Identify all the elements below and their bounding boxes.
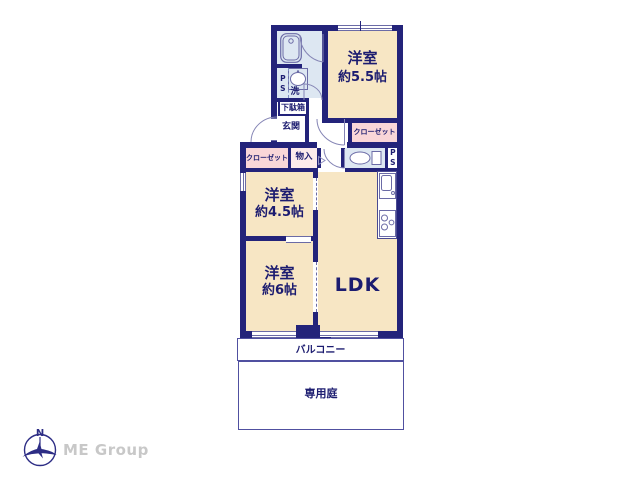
storage-label: 物入 (291, 148, 317, 168)
door-swing-icon (304, 84, 322, 100)
door-swing-icon (317, 119, 345, 145)
room-name: 洋室 (347, 50, 377, 67)
window-tick (360, 21, 361, 31)
room-label-bedroom-4-5: 洋室 約4.5帖 (246, 180, 313, 228)
balcony-label: バルコニー (237, 343, 404, 359)
wall-segment (240, 331, 252, 338)
wall-segment (378, 331, 403, 338)
room-size: 約5.5帖 (338, 71, 387, 86)
door-swing-marker-icon (318, 156, 326, 165)
window (338, 25, 392, 31)
wall-segment (397, 25, 403, 148)
toilet-icon (347, 150, 383, 166)
shoe-cabinet-label: 下駄箱 (278, 101, 308, 115)
room-size: 約4.5帖 (255, 206, 304, 221)
room-label-bedroom-5-5: 洋室 約5.5帖 (328, 42, 397, 94)
room-size: 約6帖 (262, 284, 297, 299)
room-name: 洋室 (264, 265, 294, 282)
garden-label: 専用庭 (238, 386, 404, 402)
sliding-door-opening (286, 236, 311, 243)
pipe-space-label-upper: PS (276, 70, 288, 97)
window (252, 331, 296, 338)
wall-segment (246, 168, 317, 172)
closet-upper-label: クローゼット (352, 123, 397, 142)
compass-icon: N (20, 421, 62, 469)
logo-text: ME Group (63, 441, 149, 459)
floor-plan-canvas: バルコニー 専用庭 (0, 0, 640, 480)
entrance-label: 玄関 (274, 120, 308, 134)
door-swing-icon (300, 34, 324, 62)
stove-icon (379, 210, 396, 237)
room-name: 洋室 (264, 187, 294, 204)
room-label-ldk: LDK (318, 272, 397, 300)
closet-lower-label: クローゼット (246, 148, 288, 168)
door-swing-icon (324, 149, 345, 168)
kitchen-sink-icon (379, 173, 396, 199)
wall-segment (397, 148, 403, 332)
room-label-bedroom-6: 洋室 約6帖 (246, 258, 313, 306)
pipe-space-label-lower: PS (386, 148, 398, 167)
laundry-label: 洗 (287, 87, 303, 98)
partition-dashed (288, 68, 289, 98)
bathtub-icon (280, 33, 302, 63)
sliding-door-opening (313, 178, 318, 210)
